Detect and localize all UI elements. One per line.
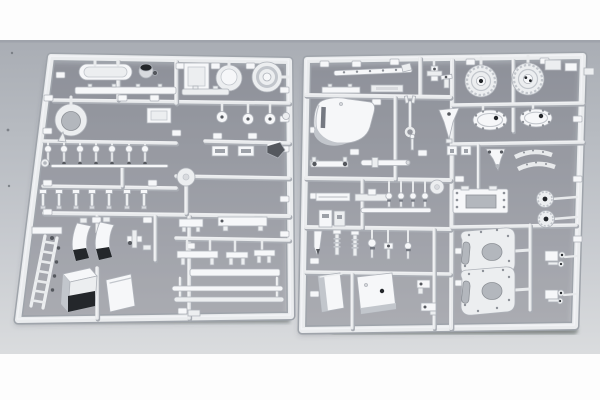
part-number-tab — [573, 176, 582, 182]
part-number-tab — [280, 87, 289, 93]
part-number-tab — [310, 291, 319, 297]
part-number-tab — [143, 217, 152, 223]
part-number-tab — [43, 209, 52, 215]
part-number-tab — [466, 59, 475, 65]
part-number-tab — [350, 149, 359, 155]
part-number-tab — [178, 308, 187, 314]
part-number-tab — [44, 95, 53, 101]
part-number-tab — [148, 180, 157, 186]
part-number-tab — [573, 236, 582, 242]
part-number-tab — [573, 116, 582, 122]
part-number-tab — [352, 61, 361, 67]
part-number-tab — [280, 231, 289, 237]
part-number-tab — [211, 63, 220, 69]
dust-speck — [8, 185, 10, 187]
part-number-tab — [213, 133, 222, 139]
left-sprue — [15, 56, 291, 325]
part-number-tab — [280, 196, 289, 202]
surface-seam — [0, 40, 600, 43]
part-number-tab — [43, 128, 52, 134]
white-band-top — [0, 0, 600, 40]
white-band-bottom — [0, 354, 600, 400]
part-number-tab — [320, 61, 329, 67]
part-number-tab — [150, 95, 159, 101]
part-number-tab — [118, 95, 127, 101]
part-number-tab — [43, 180, 52, 186]
right-sprue — [299, 55, 594, 335]
part-number-tab — [455, 176, 464, 182]
dust-speck — [11, 52, 13, 54]
part-number-tab — [246, 63, 255, 69]
part-number-tab — [390, 59, 399, 65]
part-number-tab — [310, 258, 319, 264]
dust-speck — [7, 129, 10, 132]
part-number-tab — [248, 133, 257, 139]
part-number-tab — [172, 130, 181, 136]
sprue-photo-svg — [0, 0, 600, 400]
part-number-tab — [56, 72, 65, 78]
model-kit-sprues-photo — [0, 0, 600, 400]
part-number-tab — [418, 150, 427, 156]
